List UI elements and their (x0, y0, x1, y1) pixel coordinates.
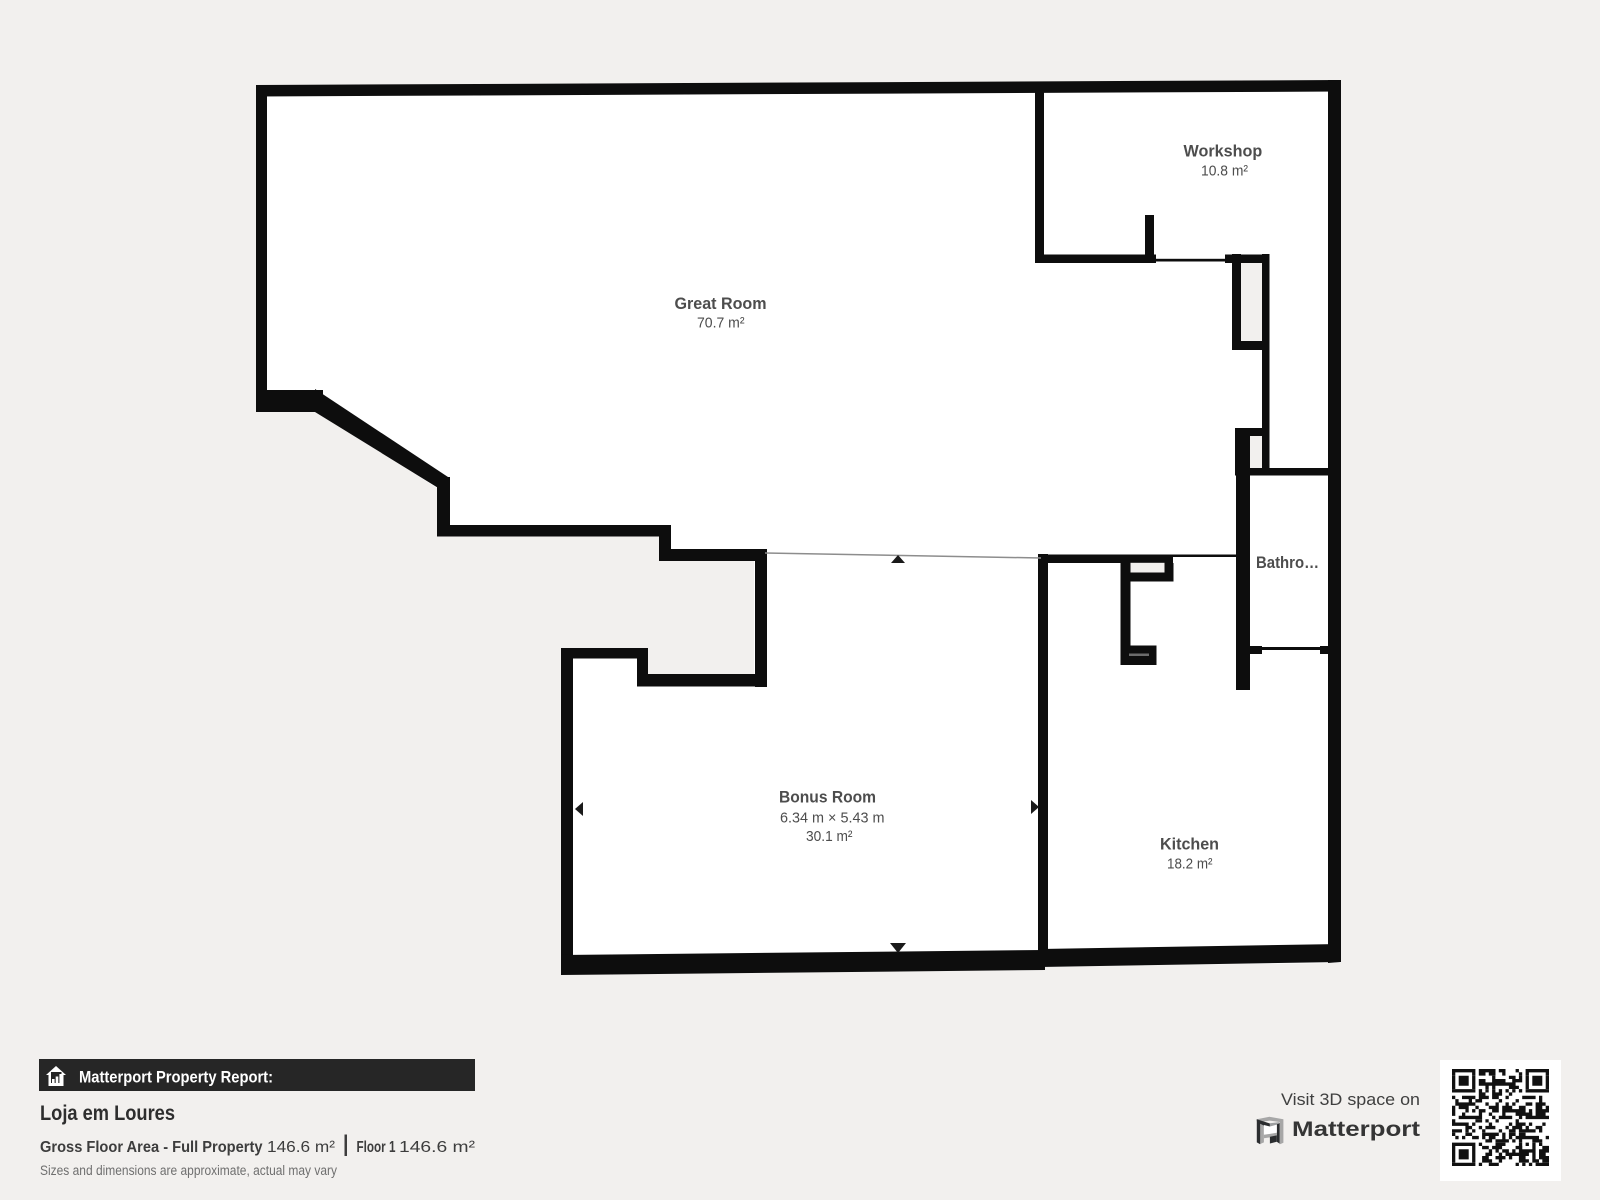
svg-text:146.6 m²: 146.6 m² (267, 1139, 336, 1156)
svg-text:Workshop: Workshop (1184, 142, 1263, 161)
svg-text:Great Room: Great Room (675, 294, 767, 313)
svg-text:Bonus Room: Bonus Room (779, 788, 876, 807)
svg-text:Loja em Loures: Loja em Loures (40, 1102, 175, 1125)
svg-text:6.34 m × 5.43 m: 6.34 m × 5.43 m (780, 810, 885, 827)
svg-text:Kitchen: Kitchen (1160, 835, 1219, 854)
svg-text:Bathro…: Bathro… (1256, 553, 1319, 572)
svg-text:18.2 m²: 18.2 m² (1167, 856, 1213, 873)
svg-text:Visit 3D space on: Visit 3D space on (1281, 1091, 1420, 1109)
svg-text:Gross Floor Area - Full Proper: Gross Floor Area - Full Property (40, 1139, 263, 1156)
svg-text:Matterport: Matterport (1292, 1117, 1420, 1141)
svg-text:Sizes and dimensions are appro: Sizes and dimensions are approximate, ac… (40, 1163, 337, 1178)
svg-text:Matterport Property Report:: Matterport Property Report: (79, 1069, 273, 1087)
svg-text:70.7 m²: 70.7 m² (697, 315, 745, 332)
svg-text:146.6 m²: 146.6 m² (399, 1139, 476, 1156)
svg-text:30.1 m²: 30.1 m² (806, 828, 853, 845)
svg-text:10.8 m²: 10.8 m² (1201, 163, 1248, 180)
svg-text:Floor 1: Floor 1 (357, 1139, 396, 1156)
